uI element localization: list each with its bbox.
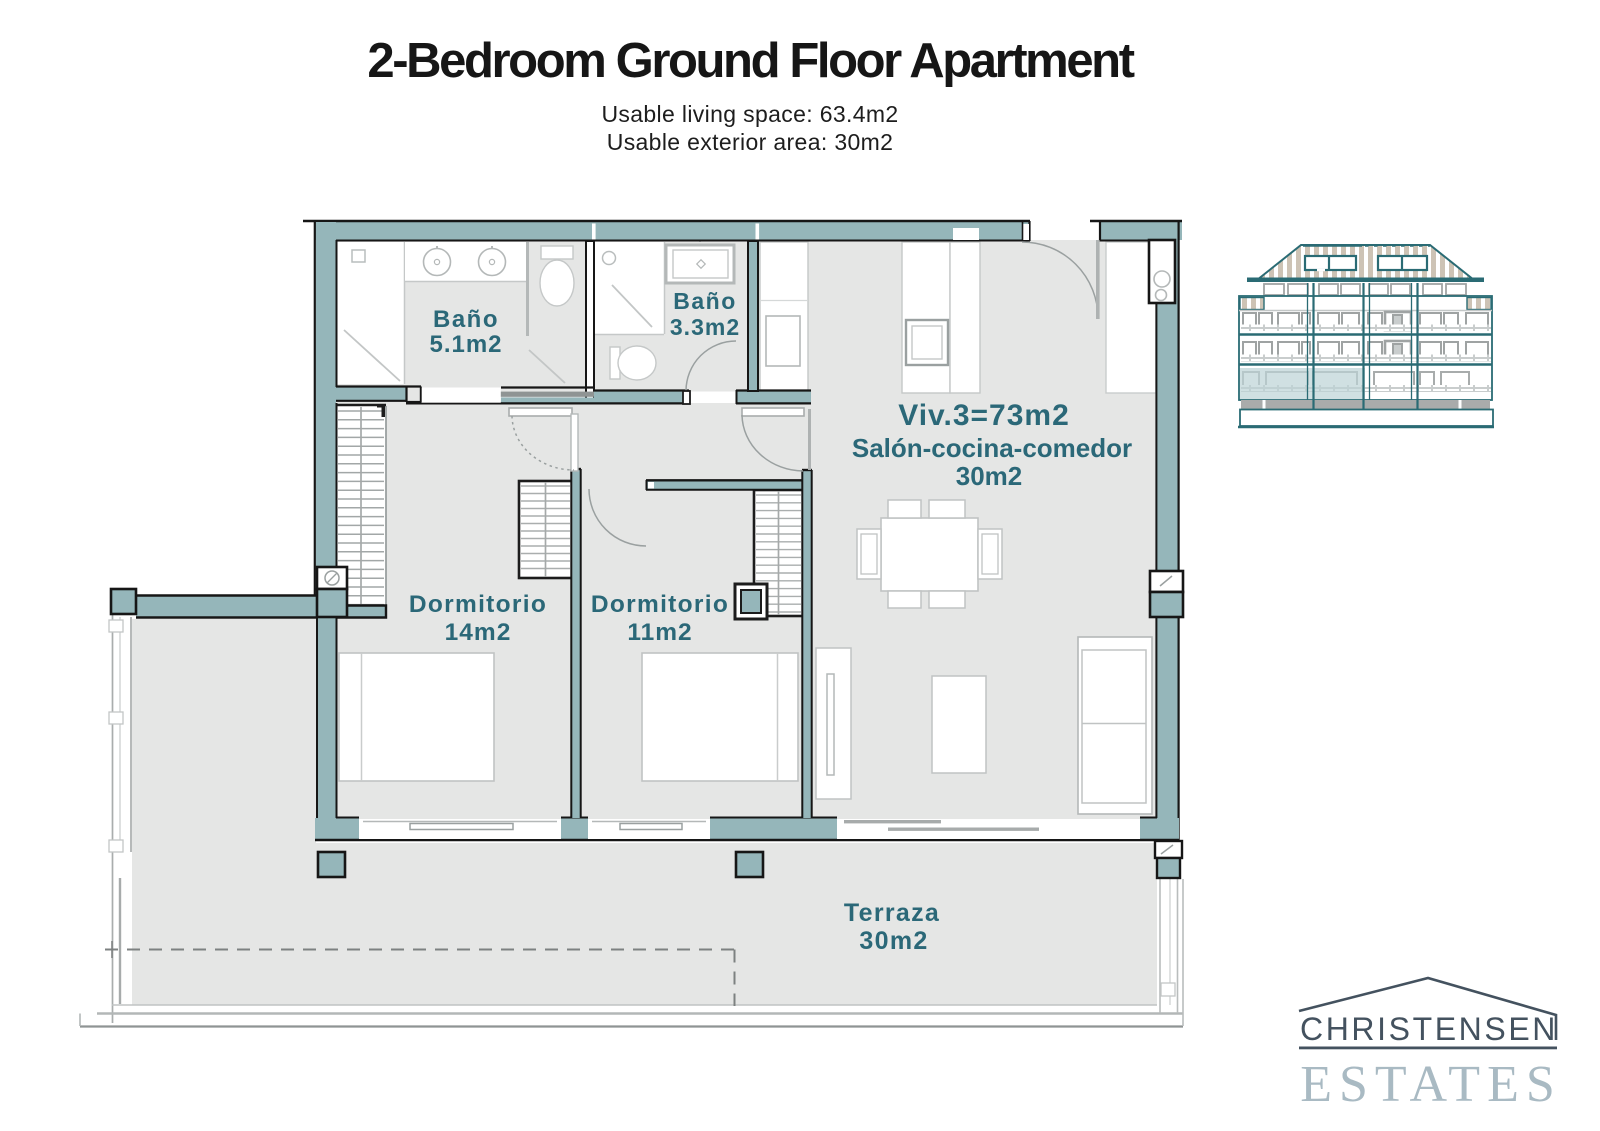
svg-text:30m2: 30m2 — [956, 461, 1023, 491]
svg-text:Baño: Baño — [673, 288, 737, 314]
svg-text:3.3m2: 3.3m2 — [670, 314, 740, 340]
svg-text:CHRISTENSEN: CHRISTENSEN — [1300, 1011, 1558, 1047]
svg-text:Terraza: Terraza — [844, 899, 940, 927]
svg-text:Dormitorio: Dormitorio — [591, 591, 729, 618]
svg-text:Baño: Baño — [433, 306, 499, 333]
svg-text:5.1m2: 5.1m2 — [429, 331, 502, 358]
svg-text:30m2: 30m2 — [859, 927, 928, 955]
svg-text:Salón-cocina-comedor: Salón-cocina-comedor — [852, 433, 1132, 463]
svg-text:Usable living space: 63.4m2: Usable living space: 63.4m2 — [601, 101, 898, 127]
svg-text:2-Bedroom Ground Floor Apartme: 2-Bedroom Ground Floor Apartment — [367, 34, 1134, 88]
svg-text:ESTATES: ESTATES — [1300, 1056, 1562, 1113]
svg-text:Usable exterior area: 30m2: Usable exterior area: 30m2 — [607, 129, 894, 155]
svg-text:Dormitorio: Dormitorio — [409, 591, 547, 618]
svg-text:Viv.3=73m2: Viv.3=73m2 — [898, 399, 1070, 432]
svg-text:14m2: 14m2 — [445, 619, 512, 646]
svg-text:11m2: 11m2 — [627, 619, 692, 646]
